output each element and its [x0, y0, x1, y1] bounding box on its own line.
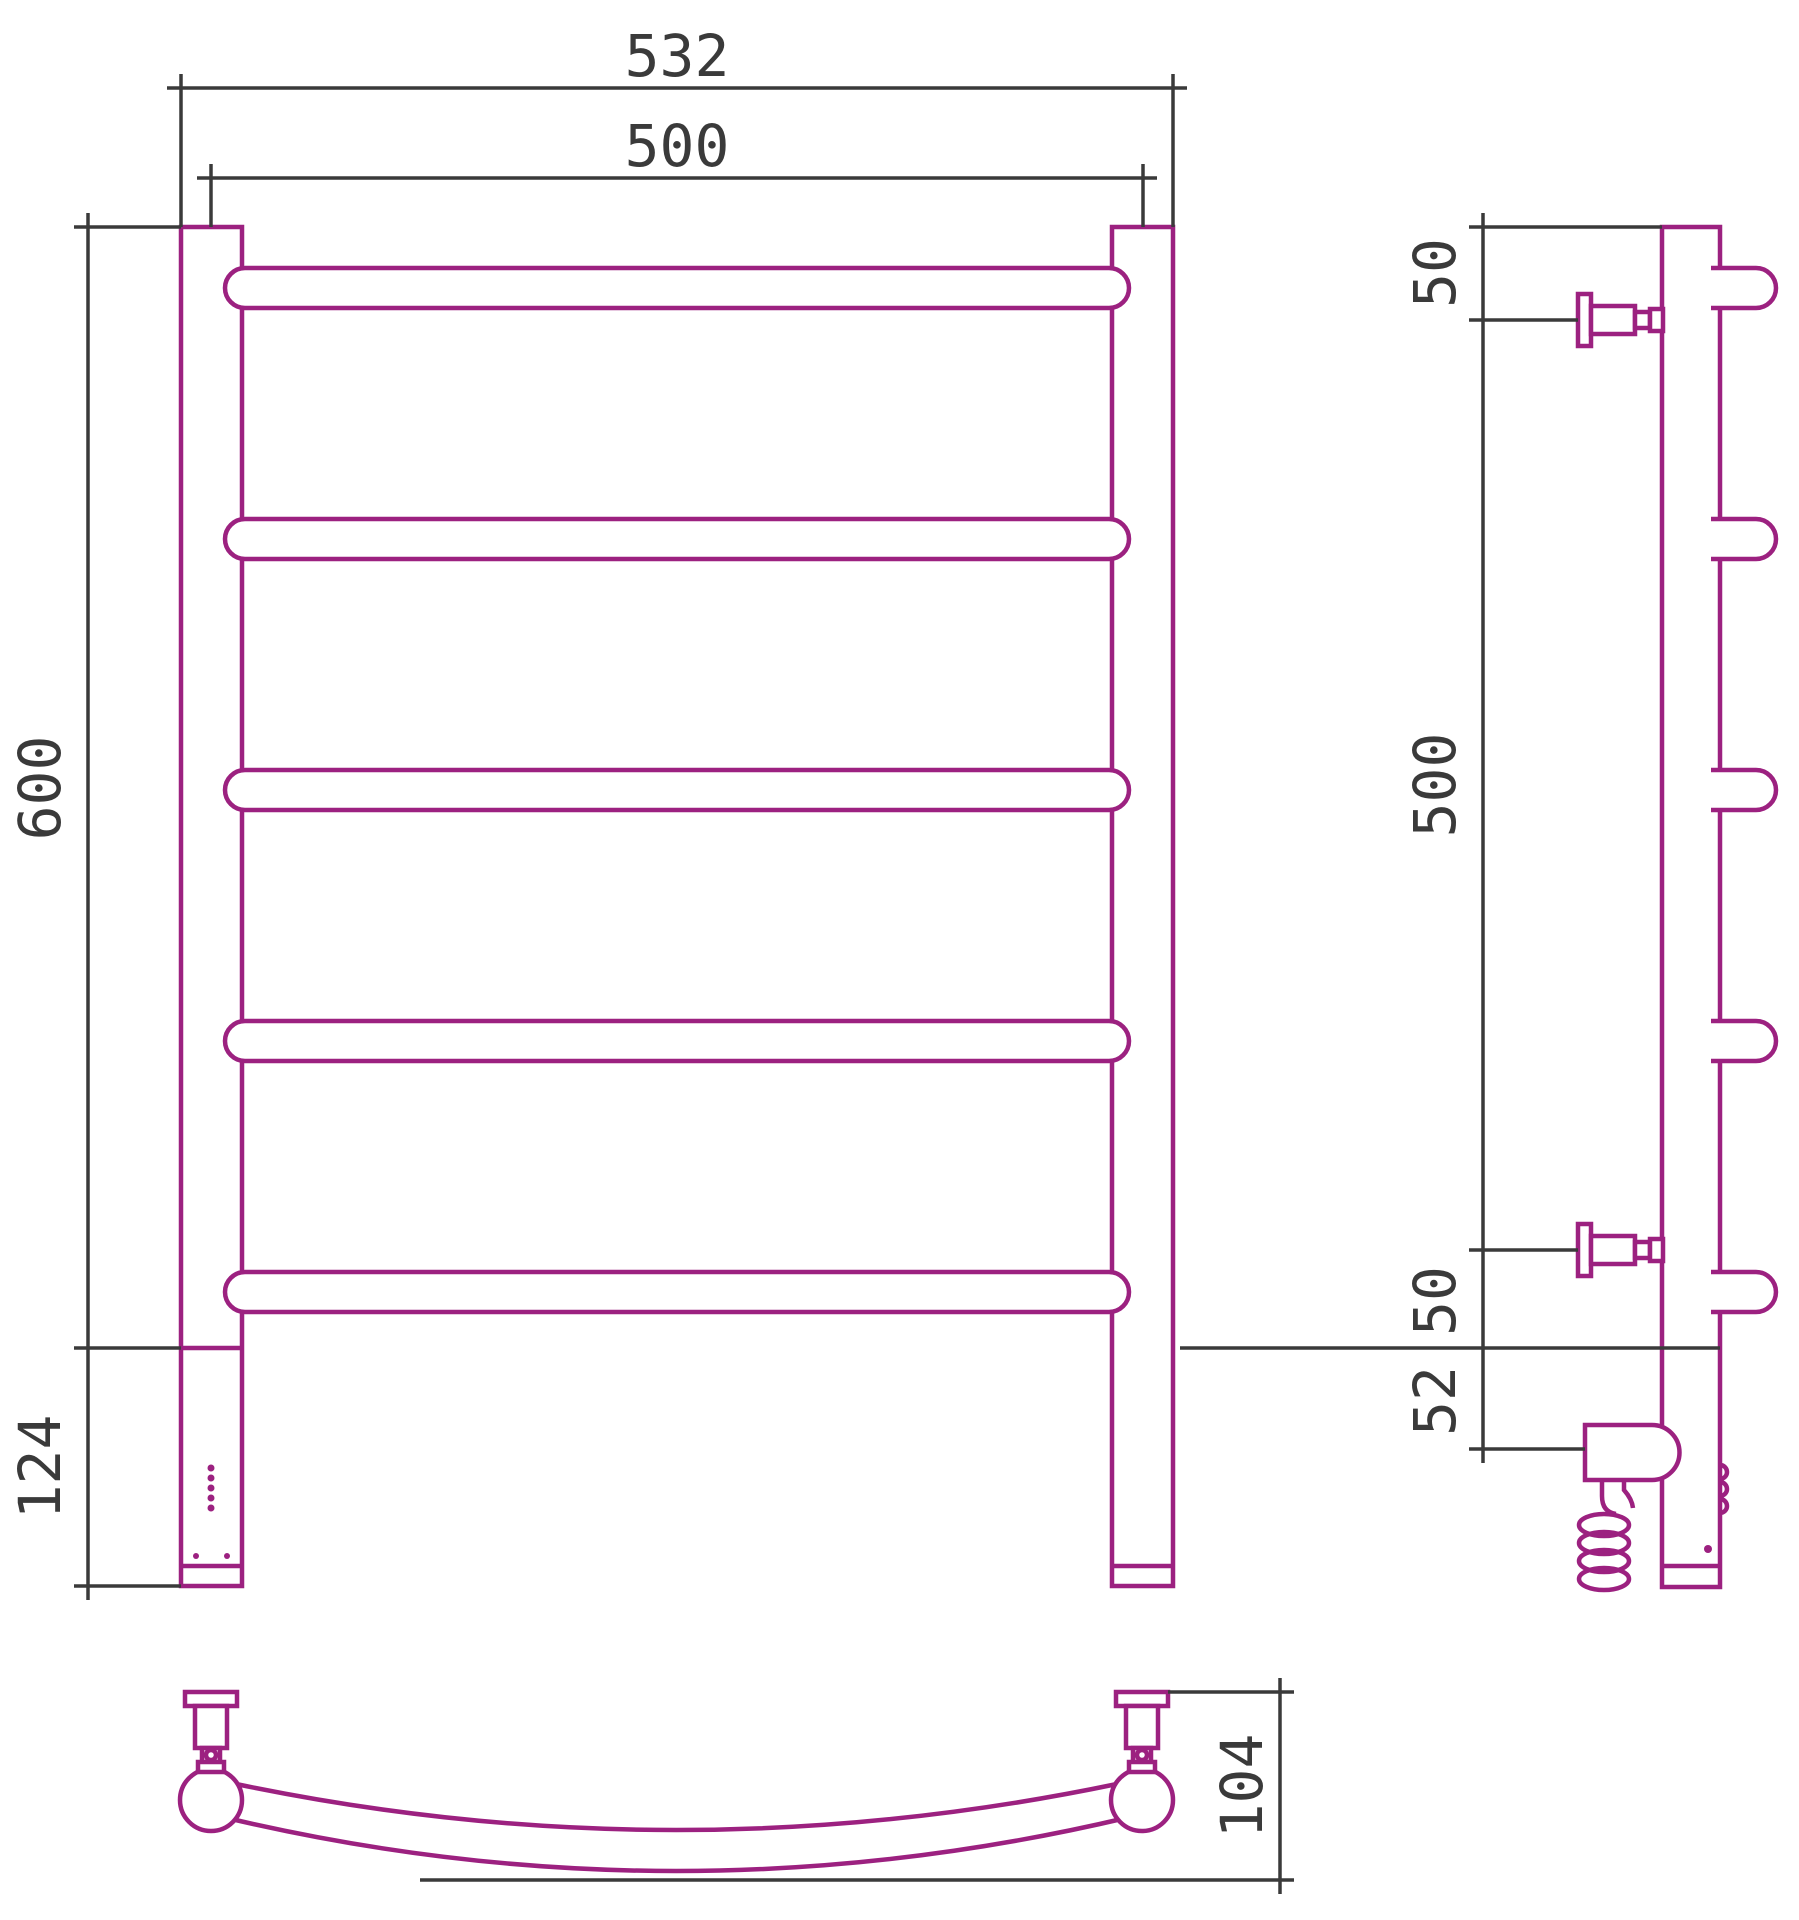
label-depth: 104 [1208, 1734, 1276, 1839]
side-post [1662, 227, 1720, 1587]
lower-wall-bracket [1578, 1224, 1663, 1276]
stub-1 [1711, 268, 1776, 308]
upper-wall-bracket [1578, 294, 1663, 346]
heater-cable-2 [1624, 1480, 1633, 1508]
side-view [1578, 227, 1776, 1590]
label-bar-length: 500 [625, 112, 730, 180]
stub-2 [1711, 519, 1776, 559]
front-view [181, 227, 1173, 1586]
label-overall-width: 532 [625, 22, 730, 90]
arc-band-fill [227, 1784, 1126, 1871]
heater-element-housing [1585, 1425, 1680, 1480]
bar-4 [225, 1021, 1129, 1061]
bar-5 [225, 1272, 1129, 1312]
front-bars [225, 268, 1129, 1312]
technical-drawing: 532 500 600 124 50 500 50 52 104 [0, 0, 1799, 1920]
heater-cable [1602, 1480, 1616, 1514]
stub-4 [1711, 1021, 1776, 1061]
right-bracket-top [1116, 1692, 1168, 1772]
label-heater-offset: 52 [1401, 1366, 1469, 1436]
dimension-lines [74, 74, 1720, 1894]
label-heater-section: 124 [6, 1415, 74, 1520]
dim-height-left [74, 213, 181, 1600]
left-post-section [180, 1769, 242, 1831]
right-post-section [1111, 1769, 1173, 1831]
label-top-offset: 50 [1401, 238, 1469, 308]
left-bracket-top [185, 1692, 237, 1772]
spiral-cable [1579, 1514, 1629, 1590]
bar-3 [225, 770, 1129, 810]
label-height: 600 [6, 736, 74, 841]
label-bracket-spacing: 500 [1401, 733, 1469, 838]
stub-3 [1711, 770, 1776, 810]
stub-5 [1711, 1272, 1776, 1312]
front-right-post [1112, 227, 1173, 1586]
bar-1 [225, 268, 1129, 308]
indicator-dot [1704, 1545, 1712, 1553]
drawing-sheet: 532 500 600 124 50 500 50 52 104 [0, 0, 1799, 1920]
top-view [180, 1692, 1173, 1871]
label-lower-offset: 50 [1401, 1266, 1469, 1336]
bar-2 [225, 519, 1129, 559]
front-left-post [181, 227, 242, 1586]
